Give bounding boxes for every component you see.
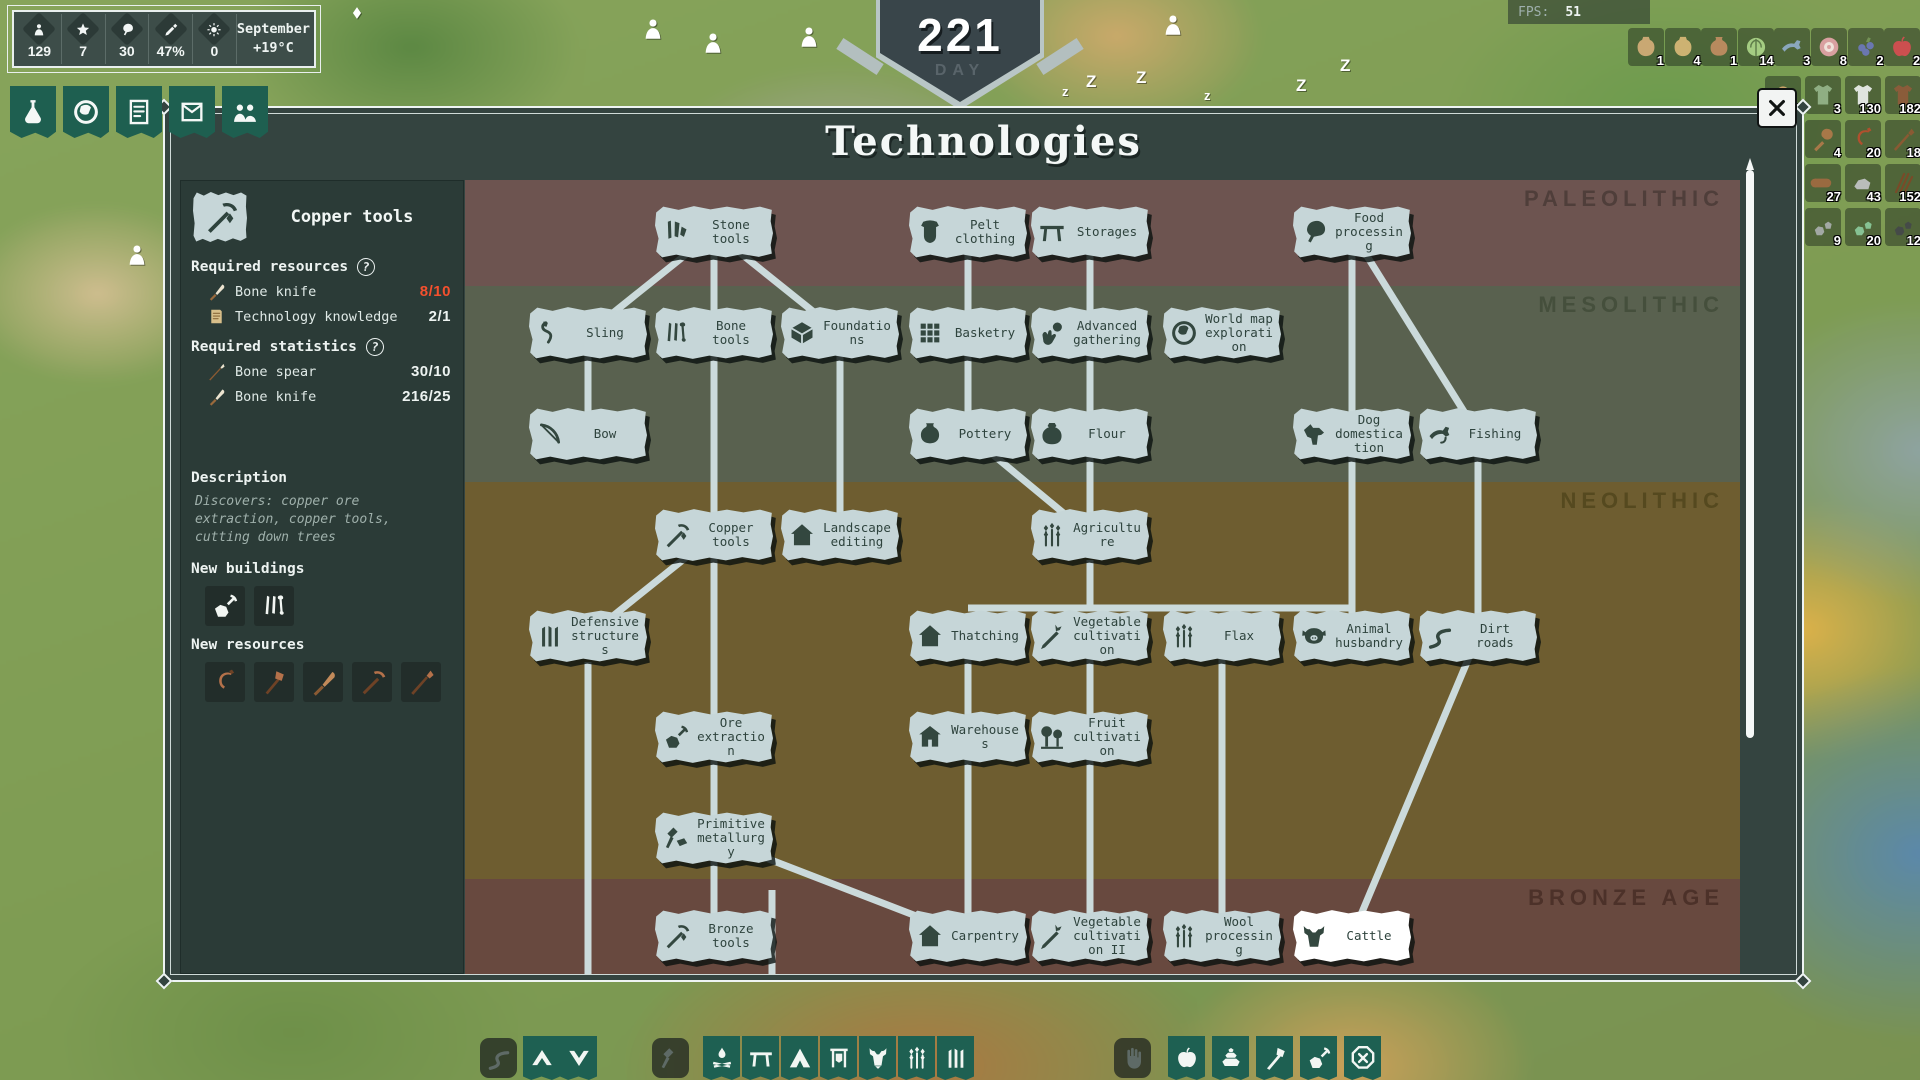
tech-node-label: Cattle — [1334, 929, 1404, 943]
villager-icon — [1160, 12, 1186, 38]
tech-node-label: Flour — [1072, 427, 1142, 441]
resource-meat-cut: 8 — [1811, 28, 1847, 66]
toolbar-tent-button[interactable] — [781, 1036, 818, 1080]
resource-log: 27 — [1805, 164, 1841, 202]
stone-tools-icon — [662, 218, 692, 246]
new-resource-copper-hoe[interactable] — [401, 662, 441, 702]
tech-node-fishing[interactable]: Fishing — [1419, 407, 1537, 461]
resource-tunic: 3 — [1805, 76, 1841, 114]
requirement-row: Bone knife8/10 — [181, 279, 463, 304]
tech-node-foundations[interactable]: Foundations — [781, 306, 899, 360]
resource-apple: 2 — [1884, 28, 1920, 66]
tech-node-flour[interactable]: Flour — [1031, 407, 1149, 461]
fps-counter: FPS: 51 — [1508, 0, 1650, 24]
copper-hoe-icon — [407, 668, 435, 696]
resource-ore-green: 20 — [1845, 208, 1881, 246]
apple-icon — [1889, 34, 1915, 60]
hammer-ingot-icon — [662, 824, 692, 852]
help-icon[interactable]: ? — [356, 257, 377, 278]
tech-node-label: Dirt roads — [1460, 622, 1530, 650]
toolbar-road-button[interactable] — [480, 1038, 517, 1078]
tab-reports[interactable] — [169, 86, 215, 138]
road-icon — [1426, 622, 1456, 650]
cancel-icon — [1350, 1045, 1376, 1071]
resource-sickle: 20 — [1845, 120, 1881, 158]
copper-sickle-icon — [211, 668, 239, 696]
club-icon — [1810, 126, 1836, 152]
tech-node-carpentry[interactable]: Carpentry — [909, 909, 1027, 963]
tech-node-animal-husbandry[interactable]: Animal husbandry — [1293, 609, 1411, 663]
tech-node-label: Warehouses — [950, 723, 1020, 751]
pottery-icon — [916, 420, 946, 448]
tech-node-flax[interactable]: Flax — [1163, 609, 1281, 663]
map-marker-diamond — [350, 6, 364, 20]
globe-icon — [72, 98, 100, 126]
tech-node-label: Fruit cultivation — [1072, 716, 1142, 757]
tech-node-pelt-clothing[interactable]: Pelt clothing — [909, 205, 1027, 259]
technologies-dialog: Technologies Copper tools Required resou… — [163, 106, 1804, 982]
tech-node-fruit-cultivation[interactable]: Fruit cultivation — [1031, 710, 1149, 764]
tech-node-label: Bow — [570, 427, 640, 441]
selected-tech-icon — [193, 191, 247, 243]
fps-value: 51 — [1565, 5, 1581, 20]
quarry-icon — [211, 592, 239, 620]
tech-node-thatching[interactable]: Thatching — [909, 609, 1027, 663]
tech-node-label: Bronze tools — [696, 922, 766, 950]
dialog-title: Technologies — [165, 118, 1802, 165]
wheat-icon — [1170, 622, 1200, 650]
tab-world[interactable] — [63, 86, 109, 138]
sack-icon — [1038, 420, 1068, 448]
new-resources-heading: New resources — [181, 628, 463, 656]
bag-seeds-icon — [1633, 34, 1659, 60]
letter-icon — [178, 98, 206, 126]
tech-node-label: Landscape editing — [822, 521, 892, 549]
tech-node-cattle[interactable]: Cattle — [1293, 909, 1411, 963]
toolbar-goat-button[interactable] — [859, 1036, 896, 1080]
trees-icon — [1038, 723, 1068, 751]
toolbar-campfire-button[interactable] — [703, 1036, 740, 1080]
month-label: September — [237, 20, 310, 39]
tech-node-defensive-structures[interactable]: Defensive structures — [529, 609, 647, 663]
scroll-icon — [125, 98, 153, 126]
map-marker-villager — [796, 24, 822, 50]
tech-node-label: Advanced gathering — [1072, 319, 1142, 347]
tech-node-dirt-roads[interactable]: Dirt roads — [1419, 609, 1537, 663]
tech-node-label: Wool processing — [1204, 915, 1274, 956]
meat-icon — [119, 22, 134, 37]
tech-node-vegetable-cultivation[interactable]: Vegetable cultivation — [1031, 609, 1149, 663]
tree-scrollbar[interactable] — [1746, 170, 1754, 738]
help-icon[interactable]: ? — [365, 337, 386, 358]
toolbar-cancel-button[interactable] — [1344, 1036, 1381, 1080]
bag-straw-icon — [1670, 34, 1696, 60]
dog-icon — [1300, 420, 1330, 448]
resource-rocks: 9 — [1805, 208, 1841, 246]
world-icon — [1170, 319, 1200, 347]
mine-icon — [662, 723, 692, 751]
wheat-icon — [1038, 521, 1068, 549]
flask-icon — [19, 98, 47, 126]
toolbar-axe-button[interactable] — [1256, 1036, 1293, 1080]
tech-node-world-map-exploration[interactable]: World map exploration — [1163, 306, 1281, 360]
tech-node-label: Carpentry — [950, 929, 1020, 943]
tab-technologies[interactable] — [10, 86, 56, 138]
toolbar-hand-button[interactable] — [1114, 1038, 1151, 1078]
new-resource-copper-knife[interactable] — [303, 662, 343, 702]
carrot-icon — [1038, 922, 1068, 950]
hammer-icon — [658, 1045, 684, 1071]
resource-fish: 3 — [1774, 28, 1810, 66]
hud-stat-star: 7 — [62, 14, 106, 64]
campfire-icon — [709, 1045, 735, 1071]
stakes-icon — [943, 1045, 969, 1071]
tech-node-label: Animal husbandry — [1334, 622, 1404, 650]
hud-stats-panel: 12973047%0September+19°C — [12, 10, 316, 68]
map-marker-sleep-z: Z — [1086, 72, 1096, 92]
resource-coat: 182 — [1885, 76, 1920, 114]
required-resources-heading: Required resources ? — [181, 249, 463, 279]
tab-population[interactable] — [222, 86, 268, 138]
toolbar-table-button[interactable] — [742, 1036, 779, 1080]
day-label: DAY — [876, 62, 1044, 80]
rocks-icon — [1810, 214, 1836, 240]
tech-node-label: Sling — [570, 326, 640, 340]
pickaxe-icon — [662, 521, 692, 549]
resource-berries: 2 — [1848, 28, 1884, 66]
resource-fibers: 152 — [1885, 164, 1920, 202]
toolbar-chevron-up-button[interactable] — [523, 1036, 560, 1080]
villager-icon — [640, 16, 666, 42]
tech-node-label: Copper tools — [696, 521, 766, 549]
requirement-label: Technology knowledge — [235, 309, 398, 325]
barn-icon — [916, 723, 946, 751]
basketry-icon — [916, 319, 946, 347]
bones-icon — [662, 319, 692, 347]
tech-node-ore-extraction[interactable]: Ore extraction — [655, 710, 773, 764]
tech-node-agriculture[interactable]: Agriculture — [1031, 508, 1149, 562]
tech-node-sling[interactable]: Sling — [529, 306, 647, 360]
jug-icon — [1706, 34, 1732, 60]
tech-node-label: Food processing — [1334, 211, 1404, 252]
tech-node-dog-domestication[interactable]: Dog domestication — [1293, 407, 1411, 461]
cattle-icon — [1300, 922, 1330, 950]
carrot-icon — [1038, 622, 1068, 650]
villager-icon — [796, 24, 822, 50]
tech-node-label: Dog domestication — [1334, 413, 1404, 454]
resource-hoe: 18 — [1885, 120, 1920, 158]
tech-node-bow[interactable]: Bow — [529, 407, 647, 461]
sword-icon — [163, 22, 178, 37]
mine-icon — [1306, 1045, 1332, 1071]
food-icon — [1300, 218, 1330, 246]
copper-pickaxe-icon — [358, 668, 386, 696]
fish-hook-icon — [1426, 420, 1456, 448]
bow-icon — [536, 420, 566, 448]
resource-jug: 1 — [1701, 28, 1737, 66]
bone-knife-icon — [207, 387, 226, 406]
requirement-label: Bone spear — [235, 364, 316, 380]
sling-icon — [536, 319, 566, 347]
tech-node-pottery[interactable]: Pottery — [909, 407, 1027, 461]
close-dialog-button[interactable] — [1757, 88, 1797, 128]
resource-shirt: 130 — [1845, 76, 1881, 114]
drying-rack-icon — [826, 1045, 852, 1071]
meat-cut-icon — [1816, 34, 1842, 60]
resource-bag-seeds: 1 — [1628, 28, 1664, 66]
chevron-down-icon — [566, 1045, 592, 1071]
wheat-icon — [904, 1045, 930, 1071]
tech-node-label: Flax — [1204, 629, 1274, 643]
bone-knife-icon — [207, 282, 226, 301]
pelt-icon — [916, 218, 946, 246]
tech-node-label: Foundations — [822, 319, 892, 347]
stakes-icon — [536, 622, 566, 650]
resource-stone: 43 — [1845, 164, 1881, 202]
berries-icon — [1853, 34, 1879, 60]
tech-node-bronze-tools[interactable]: Bronze tools — [655, 909, 773, 963]
map-marker-sleep-z: Z — [1296, 76, 1306, 96]
description-text: Discovers: copper ore extraction, copper… — [181, 489, 463, 552]
requirement-label: Bone knife — [235, 389, 316, 405]
day-value: 221 — [876, 8, 1044, 62]
map-marker-villager — [640, 16, 666, 42]
tech-node-label: Fishing — [1460, 427, 1530, 441]
table-icon — [748, 1045, 774, 1071]
toolbar-chevron-down-button[interactable] — [560, 1036, 597, 1080]
map-marker-sleep-z: z — [1062, 84, 1069, 99]
requirement-value: 216/25 — [402, 388, 451, 405]
fps-label: FPS: — [1518, 5, 1549, 20]
apple-icon — [1174, 1045, 1200, 1071]
tech-node-storages[interactable]: Storages — [1031, 205, 1149, 259]
road-icon — [486, 1045, 512, 1071]
requirement-row: Technology knowledge2/1 — [181, 304, 463, 329]
tech-node-warehouses[interactable]: Warehouses — [909, 710, 1027, 764]
new-resource-copper-pickaxe[interactable] — [352, 662, 392, 702]
bone-spear-icon — [207, 362, 226, 381]
hud-stat-meat: 30 — [106, 14, 150, 64]
map-marker-villager — [1160, 12, 1186, 38]
tech-node-label: Vegetable cultivation II — [1072, 915, 1142, 956]
requirement-value: 8/10 — [420, 283, 451, 300]
tech-node-label: Thatching — [950, 629, 1020, 643]
table-icon — [1038, 218, 1068, 246]
tech-node-label: Ore extraction — [696, 716, 766, 757]
wheat-icon — [1170, 922, 1200, 950]
temperature-label: +19°C — [237, 39, 310, 58]
map-marker-sleep-z: Z — [1340, 56, 1350, 76]
tech-node-label: Agriculture — [1072, 521, 1142, 549]
tech-node-bone-tools[interactable]: Bone tools — [655, 306, 773, 360]
hand-icon — [1120, 1045, 1146, 1071]
copper-axe-icon — [260, 668, 288, 696]
tech-node-basketry[interactable]: Basketry — [909, 306, 1027, 360]
tech-node-label: Vegetable cultivation — [1072, 615, 1142, 656]
foundation-icon — [788, 319, 818, 347]
hud-stat-sun: 0 — [193, 14, 237, 64]
tech-node-wool-processing[interactable]: Wool processing — [1163, 909, 1281, 963]
diamond-icon — [350, 6, 364, 20]
house-icon — [788, 521, 818, 549]
pig-icon — [1300, 622, 1330, 650]
resource-cabbage: 14 — [1738, 28, 1774, 66]
pickaxe-icon — [662, 922, 692, 950]
requirement-row: Bone spear30/10 — [181, 359, 463, 384]
goat-icon — [865, 1045, 891, 1071]
toolbar-wheat-button[interactable] — [898, 1036, 935, 1080]
tech-tree: PALEOLITHICMESOLITHICNEOLITHICBRONZE AGE… — [465, 180, 1740, 974]
pickaxe-icon — [202, 199, 238, 235]
day-banner: 221 DAY — [876, 0, 1044, 110]
people-icon — [231, 98, 259, 126]
tunic-icon — [1810, 82, 1836, 108]
resource-club: 4 — [1805, 120, 1841, 158]
hud-stat-person: 129 — [18, 14, 62, 64]
tech-detail-sidebar: Copper tools Required resources ? Bone k… — [180, 180, 464, 974]
new-resource-copper-axe[interactable] — [254, 662, 294, 702]
map-marker-sleep-z: z — [1204, 88, 1211, 103]
villager-icon — [124, 242, 150, 268]
new-resource-copper-sickle[interactable] — [205, 662, 245, 702]
tech-node-label: Primitive metallurgy — [696, 817, 766, 858]
description-heading: Description — [181, 461, 463, 489]
toolbar-drying-rack-button[interactable] — [820, 1036, 857, 1080]
toolbar-stakes-button[interactable] — [937, 1036, 974, 1080]
tech-scroll-icon — [207, 307, 226, 326]
tab-chronicle[interactable] — [116, 86, 162, 138]
fish-icon — [1779, 34, 1805, 60]
tech-node-primitive-metallurgy[interactable]: Primitive metallurgy — [655, 811, 773, 865]
tech-node-label: Storages — [1072, 225, 1142, 239]
map-marker-villager — [700, 30, 726, 56]
tech-node-vegetable-cultivation-ii[interactable]: Vegetable cultivation II — [1031, 909, 1149, 963]
resource-coal: 12 — [1885, 208, 1920, 246]
tech-node-label: Bone tools — [696, 319, 766, 347]
tech-node-label: Basketry — [950, 326, 1020, 340]
house-icon — [916, 622, 946, 650]
star-icon — [76, 22, 91, 37]
stones-icon — [1218, 1045, 1244, 1071]
resource-bag-straw: 4 — [1665, 28, 1701, 66]
tech-node-label: Pottery — [950, 427, 1020, 441]
tech-node-stone-tools[interactable]: Stone tools — [655, 205, 773, 259]
tech-node-food-processing[interactable]: Food processing — [1293, 205, 1411, 259]
axe-icon — [1262, 1045, 1288, 1071]
toolbar-apple-button[interactable] — [1168, 1036, 1205, 1080]
map-marker-sleep-z: Z — [1136, 68, 1146, 88]
tech-node-copper-tools[interactable]: Copper tools — [655, 508, 773, 562]
house-icon — [916, 922, 946, 950]
close-icon — [1766, 97, 1788, 119]
new-building-quarry[interactable] — [205, 586, 245, 626]
toolbar-mine-button[interactable] — [1300, 1036, 1337, 1080]
requirement-label: Bone knife — [235, 284, 316, 300]
new-buildings-heading: New buildings — [181, 552, 463, 580]
new-building-bone-pile[interactable] — [254, 586, 294, 626]
tech-node-landscape-editing[interactable]: Landscape editing — [781, 508, 899, 562]
tent-icon — [787, 1045, 813, 1071]
requirement-value: 2/1 — [429, 308, 451, 325]
sun-icon — [207, 22, 222, 37]
selected-tech-title: Copper tools — [263, 207, 451, 227]
requirement-row: Bone knife216/25 — [181, 384, 463, 409]
person-icon — [32, 22, 47, 37]
tech-node-advanced-gathering[interactable]: Advanced gathering — [1031, 306, 1149, 360]
hand-fruit-icon — [1038, 319, 1068, 347]
tech-node-label: Pelt clothing — [950, 218, 1020, 246]
tech-node-label: Stone tools — [696, 218, 766, 246]
required-statistics-heading: Required statistics ? — [181, 329, 463, 359]
bone-pile-icon — [260, 592, 288, 620]
map-marker-villager — [124, 242, 150, 268]
tech-node-label: World map exploration — [1204, 312, 1274, 353]
copper-knife-icon — [309, 668, 337, 696]
hud-stat-sword: 47% — [149, 14, 193, 64]
requirement-value: 30/10 — [411, 363, 451, 380]
chevron-up-icon — [529, 1045, 555, 1071]
villager-icon — [700, 30, 726, 56]
toolbar-stones-button[interactable] — [1212, 1036, 1249, 1080]
toolbar-hammer-button[interactable] — [652, 1038, 689, 1078]
hud-date: September+19°C — [237, 14, 310, 64]
tech-node-label: Defensive structures — [570, 615, 640, 656]
